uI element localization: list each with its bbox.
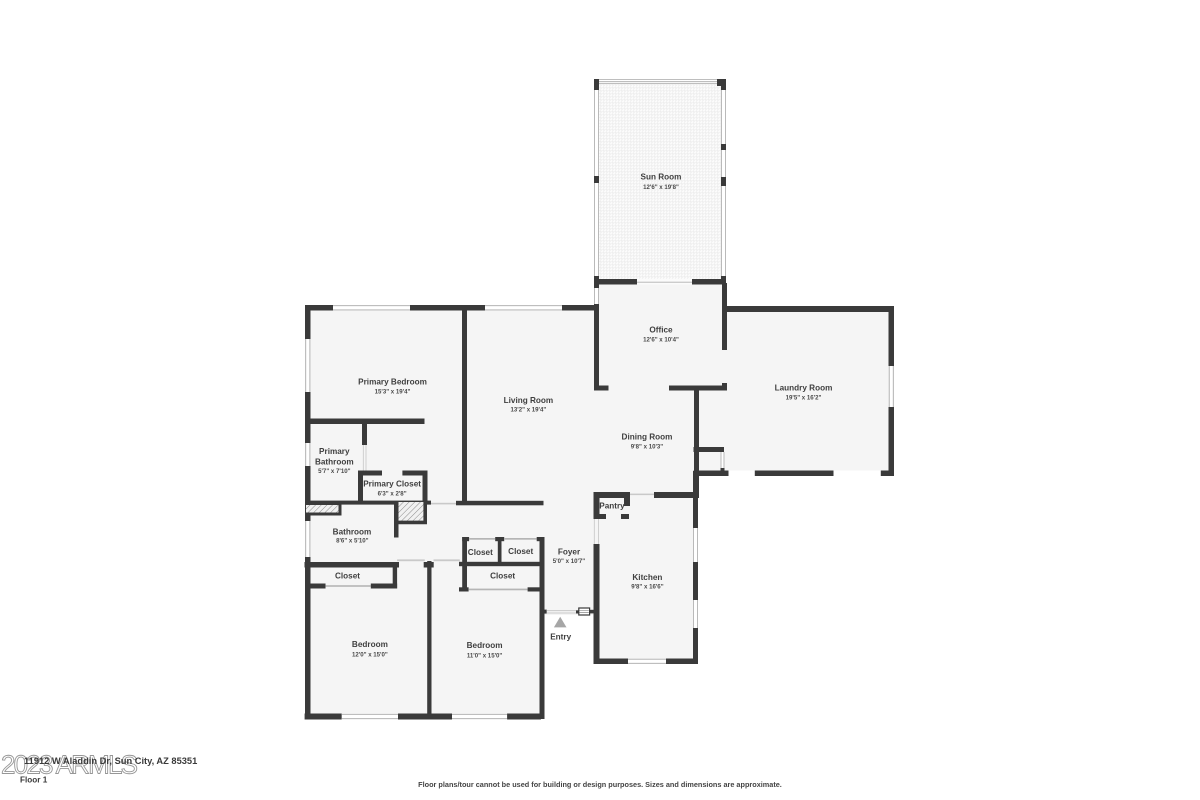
svg-text:Entry: Entry (550, 632, 571, 641)
svg-text:Dining Room: Dining Room (622, 433, 673, 442)
svg-text:9'8" x 16'6": 9'8" x 16'6" (631, 584, 664, 591)
svg-text:Primary: Primary (319, 447, 350, 456)
svg-text:Office: Office (649, 326, 673, 335)
svg-text:15'3" x 19'4": 15'3" x 19'4" (375, 388, 411, 395)
svg-text:Bedroom: Bedroom (352, 640, 388, 649)
svg-text:Foyer: Foyer (558, 548, 581, 557)
svg-text:Bedroom: Bedroom (467, 641, 503, 650)
svg-text:Floor plans/tour cannot be use: Floor plans/tour cannot be used for buil… (418, 780, 782, 789)
svg-text:19'5" x 16'2": 19'5" x 16'2" (786, 395, 822, 402)
svg-text:Primary Closet: Primary Closet (363, 480, 421, 489)
svg-text:11912 W Aladdin Dr, Sun City,: 11912 W Aladdin Dr, Sun City, AZ 85351 (24, 756, 197, 766)
svg-text:11'0" x 15'0": 11'0" x 15'0" (467, 653, 503, 660)
svg-text:Closet: Closet (468, 548, 493, 557)
svg-text:Kitchen: Kitchen (632, 573, 662, 582)
svg-text:6'3" x 2'8": 6'3" x 2'8" (378, 490, 407, 497)
svg-text:13'2" x 19'4": 13'2" x 19'4" (511, 406, 547, 413)
svg-text:Laundry Room: Laundry Room (775, 384, 833, 393)
svg-text:Closet: Closet (490, 572, 515, 581)
svg-text:12'6" x 10'4": 12'6" x 10'4" (643, 337, 679, 344)
svg-text:Bathroom: Bathroom (333, 527, 372, 536)
svg-text:12'6" x 19'8": 12'6" x 19'8" (643, 184, 679, 191)
svg-text:Bathroom: Bathroom (315, 457, 354, 466)
svg-text:8'6" x 5'10": 8'6" x 5'10" (336, 538, 369, 545)
svg-text:Pantry: Pantry (599, 501, 625, 510)
svg-text:Floor 1: Floor 1 (20, 776, 48, 785)
svg-text:12'0" x 15'0": 12'0" x 15'0" (352, 652, 388, 659)
svg-text:9'8" x 10'3": 9'8" x 10'3" (631, 444, 664, 451)
svg-text:Primary Bedroom: Primary Bedroom (358, 378, 427, 387)
svg-text:Closet: Closet (335, 571, 360, 580)
svg-text:5'0" x 10'7": 5'0" x 10'7" (553, 558, 586, 565)
svg-text:Sun Room: Sun Room (641, 173, 682, 182)
svg-text:5'7" x 7'10": 5'7" x 7'10" (318, 468, 351, 475)
svg-text:Closet: Closet (508, 547, 533, 556)
svg-text:Living Room: Living Room (504, 396, 554, 405)
